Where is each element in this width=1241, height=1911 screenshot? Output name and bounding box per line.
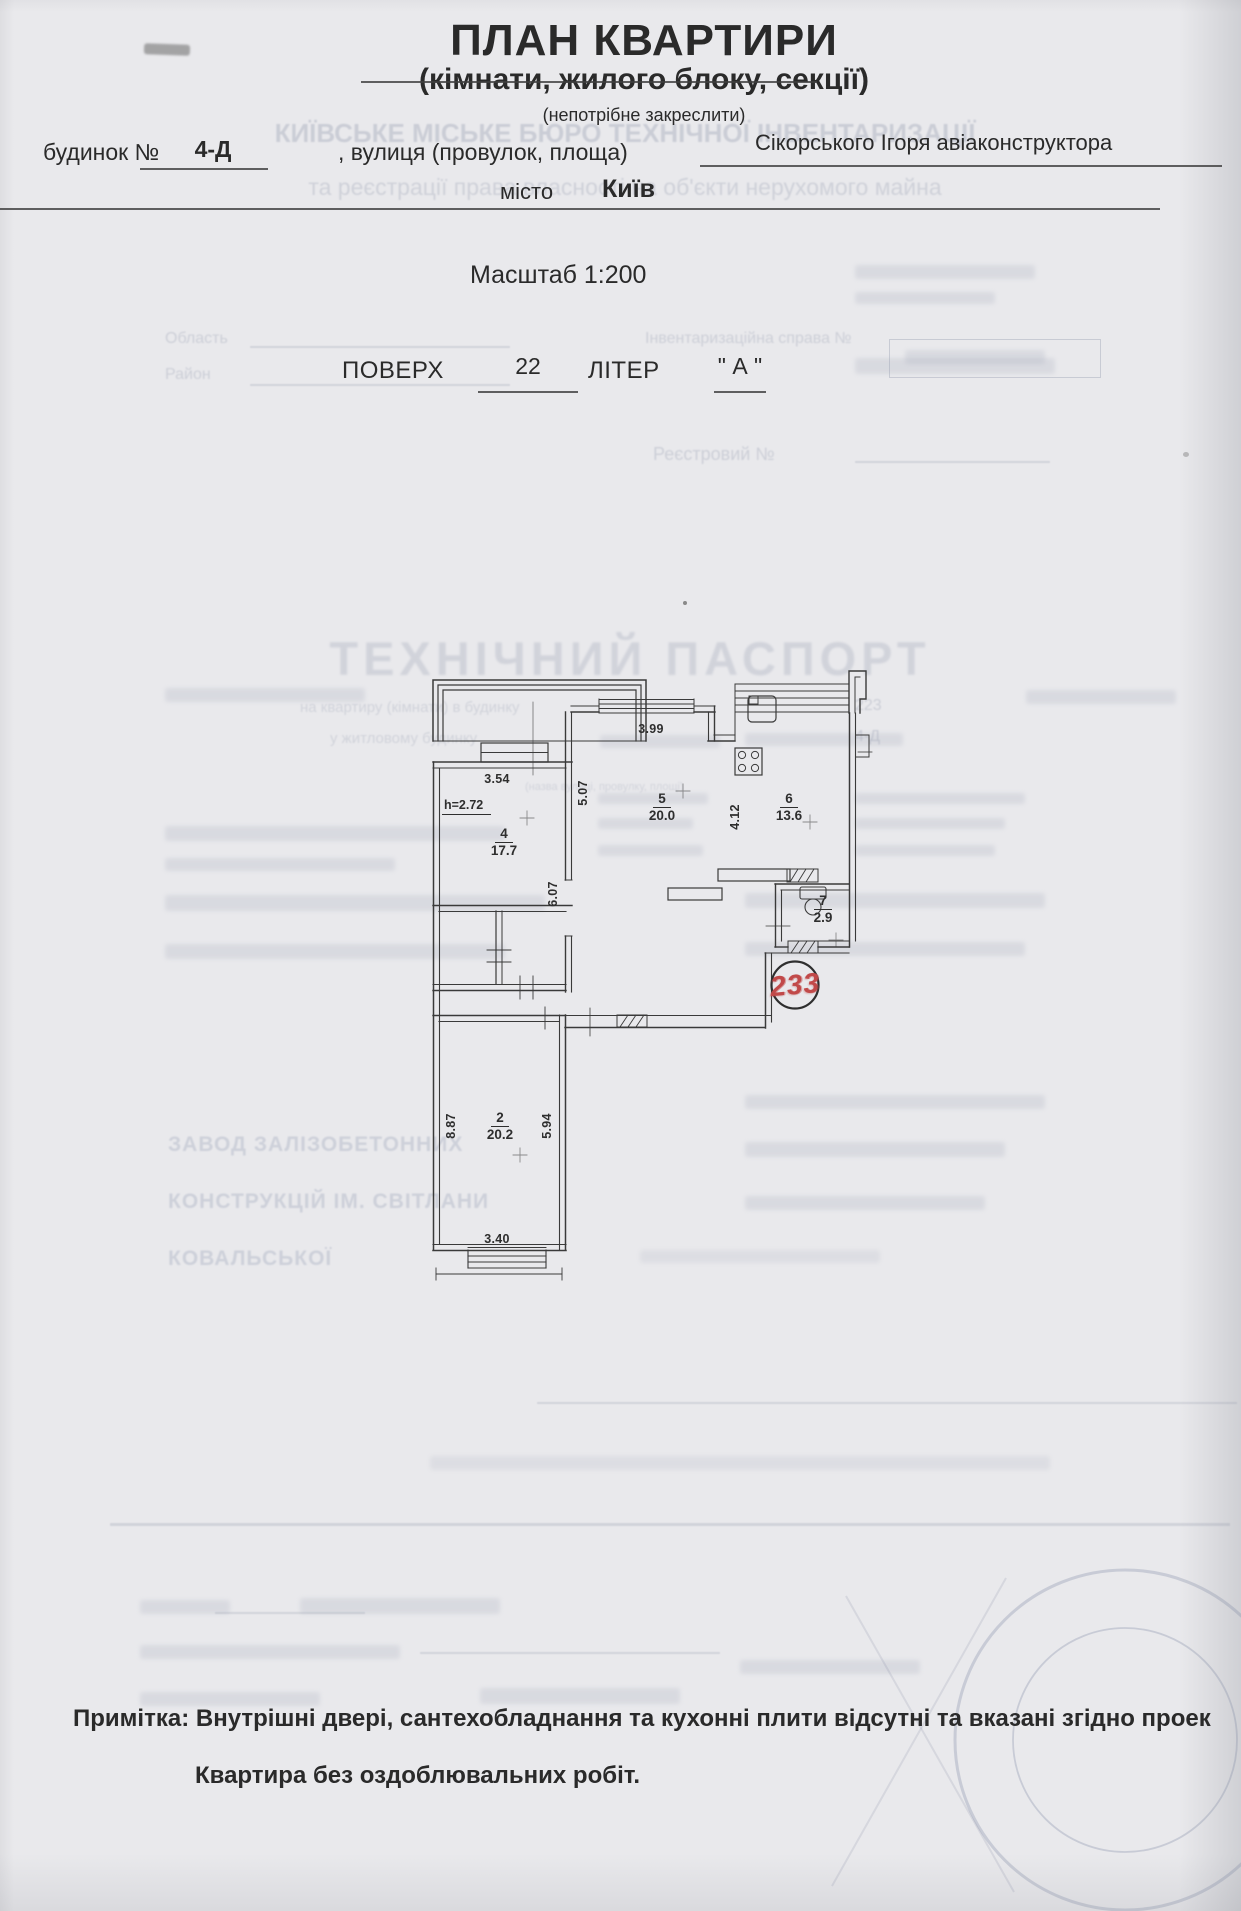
dim-room2-width: 3.40 xyxy=(475,1232,519,1246)
hall-wall-segment xyxy=(718,869,790,881)
room-area: 20.0 xyxy=(639,808,685,824)
balcony-bottom xyxy=(436,1250,562,1280)
room-area: 20.2 xyxy=(477,1127,523,1143)
floor-underline xyxy=(478,391,578,393)
dim-room6-depth: 4.12 xyxy=(728,795,742,839)
ghost-seal xyxy=(832,1570,1241,1910)
subtitle-note: (непотрібне закреслити) xyxy=(420,105,868,126)
dim-room2-inner: 5.94 xyxy=(540,1104,554,1148)
city-label: місто xyxy=(500,179,553,205)
scan-speck xyxy=(1183,452,1189,457)
room-number: 7 xyxy=(814,893,832,910)
room-number: 4 xyxy=(495,826,513,843)
window-room4 xyxy=(481,743,548,762)
dim-room2-depth: 8.87 xyxy=(444,1104,458,1148)
building-label: будинок № xyxy=(43,139,159,166)
letter-value: " А " xyxy=(700,353,780,380)
sink-icon xyxy=(748,696,776,722)
dim-room5-depth: 5.07 xyxy=(576,771,590,815)
page-subtitle: (кімнати, жилого блоку, секції) xyxy=(320,63,968,97)
door-tick-marks xyxy=(487,950,545,1029)
room-area: 17.7 xyxy=(481,843,527,859)
room-number: 5 xyxy=(653,791,671,808)
room-area: 2.9 xyxy=(800,910,846,926)
header-rule xyxy=(0,208,1160,210)
letter-underline xyxy=(714,391,766,393)
street-value: Сікорського Ігоря авіаконструктора xyxy=(755,130,1112,156)
subtitle-strikethrough xyxy=(361,81,817,83)
floor-value: 22 xyxy=(498,353,558,380)
street-underline xyxy=(700,165,1222,167)
apartment-number-stamp: 233 xyxy=(767,967,824,1004)
window-kitchen xyxy=(735,684,849,741)
scan-speck xyxy=(683,601,687,605)
page-title: ПЛАН КВАРТИРИ xyxy=(320,16,968,66)
door-sill-hatch xyxy=(788,941,818,953)
letter-label: ЛІТЕР xyxy=(588,357,660,385)
dim-room5-width: 3.99 xyxy=(629,722,673,736)
wall-notch xyxy=(856,735,869,757)
room-number: 2 xyxy=(491,1110,509,1127)
room-label-4: 4 17.7 xyxy=(481,826,527,858)
door-sill-hatch xyxy=(617,1015,647,1027)
room-label-6: 6 13.6 xyxy=(766,791,812,823)
street-label: , вулиця (провулок, площа) xyxy=(338,139,628,166)
room-label-5: 5 20.0 xyxy=(639,791,685,823)
floor-label: ПОВЕРХ xyxy=(342,357,444,385)
hall-wall-segment xyxy=(668,888,722,900)
city-value: Київ xyxy=(602,175,655,204)
scale-label: Масштаб 1:200 xyxy=(470,261,646,290)
building-underline xyxy=(140,168,268,170)
room-number: 6 xyxy=(780,791,798,808)
room-area: 13.6 xyxy=(766,808,812,824)
scanned-floor-plan-document: КИЇВСЬКЕ МІСЬКЕ БЮРО ТЕХНІЧНОЇ ІНВЕНТАРИ… xyxy=(0,0,1241,1911)
room-label-2: 2 20.2 xyxy=(477,1110,523,1142)
dim-hall-depth: 6.07 xyxy=(546,872,560,916)
room-label-7: 7 2.9 xyxy=(800,893,846,925)
door-sill-hatch xyxy=(787,869,818,882)
balcony-top xyxy=(433,680,646,741)
building-value: 4-Д xyxy=(158,136,268,163)
note-line2: Квартира без оздоблювальних робіт. xyxy=(195,1762,640,1790)
height-mark: h=2.72 xyxy=(442,798,491,815)
note-line1: Примітка: Внутрішні двері, сантехобладна… xyxy=(73,1705,1241,1733)
dim-room4-width: 3.54 xyxy=(475,772,519,786)
stove-icon xyxy=(735,748,762,775)
scan-speck xyxy=(144,43,190,56)
